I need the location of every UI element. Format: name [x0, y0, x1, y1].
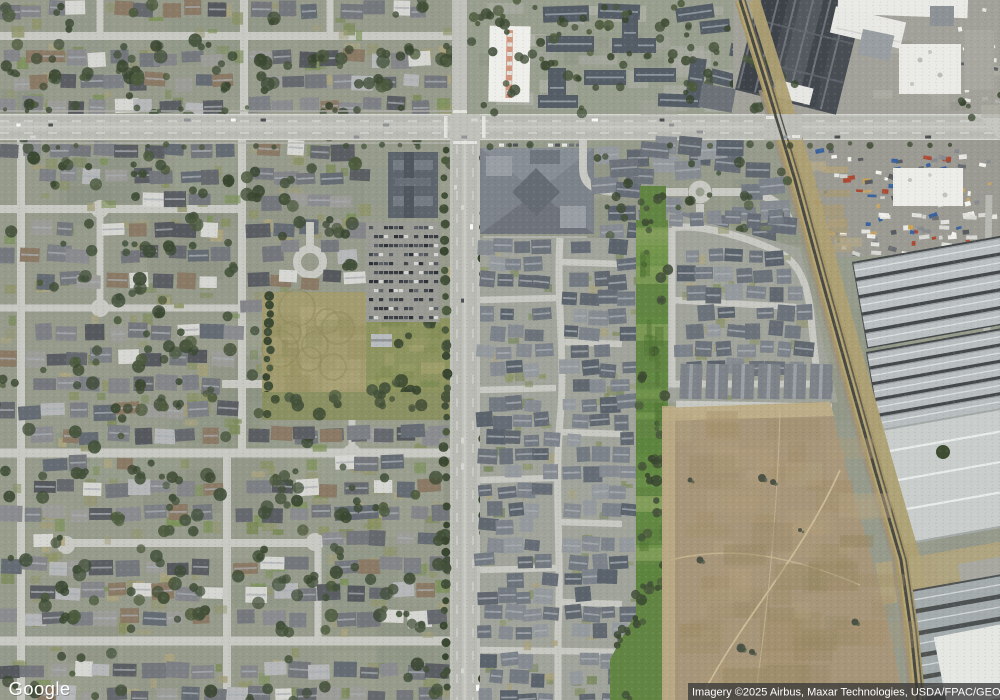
svg-text:Imagery ©2025 Airbus, Maxar Te: Imagery ©2025 Airbus, Maxar Technologies…: [692, 687, 1000, 699]
svg-text:Google: Google: [9, 678, 71, 699]
